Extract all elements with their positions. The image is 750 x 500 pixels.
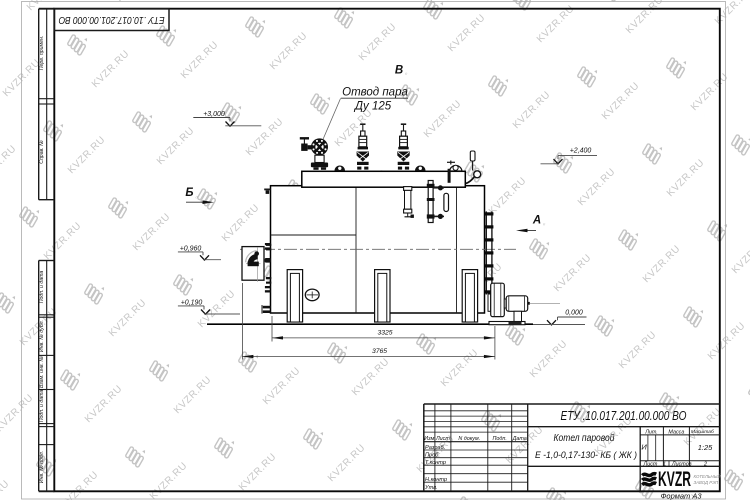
svg-text:Перв. примен.: Перв. примен. xyxy=(39,36,45,70)
svg-text:Утв.: Утв. xyxy=(424,485,438,491)
svg-text:Взам. инв. №: Взам. инв. № xyxy=(39,356,45,388)
svg-text:Инв. № подл.: Инв. № подл. xyxy=(39,451,45,483)
svg-text:ЕТУ .10.017.201.00.000 ВО: ЕТУ .10.017.201.00.000 ВО xyxy=(58,14,164,25)
svg-text:Т.контр: Т.контр xyxy=(425,460,446,466)
svg-text:Котел паровой: Котел паровой xyxy=(554,433,615,444)
svg-text:Лист: Лист xyxy=(643,461,658,467)
svg-text:1:25: 1:25 xyxy=(698,443,713,452)
svg-text:А: А xyxy=(532,215,541,227)
svg-text:+3,000: +3,000 xyxy=(203,111,225,118)
svg-text:Подп. и дата: Подп. и дата xyxy=(39,271,45,304)
svg-text:Разраб.: Разраб. xyxy=(425,445,445,451)
svg-text:ЕТУ .10.017.201.00.000 ВО: ЕТУ .10.017.201.00.000 ВО xyxy=(561,408,687,423)
svg-text:Б: Б xyxy=(185,187,193,199)
svg-text:Подп.: Подп. xyxy=(493,436,507,442)
svg-text:+0,960: +0,960 xyxy=(180,245,202,252)
svg-text:N докум.: N докум. xyxy=(458,436,480,442)
svg-text:3765: 3765 xyxy=(372,348,387,355)
svg-text:В: В xyxy=(395,65,403,77)
svg-text:Н.контр: Н.контр xyxy=(425,477,447,483)
svg-text:Изм: Изм xyxy=(424,436,434,442)
svg-text:KVZR: KVZR xyxy=(658,468,691,491)
svg-text:Подп. и дата: Подп. и дата xyxy=(39,390,45,423)
svg-text:КОТЕЛЬНЫЙ: КОТЕЛЬНЫЙ xyxy=(694,474,722,479)
svg-text:ЗАВОД РЭП: ЗАВОД РЭП xyxy=(694,480,720,485)
svg-text:Е -1,0-0,17-130- КБ ( ЖК ): Е -1,0-0,17-130- КБ ( ЖК ) xyxy=(535,450,637,461)
svg-text:Проб.: Проб. xyxy=(425,452,440,458)
svg-text:+0,190: +0,190 xyxy=(181,299,203,306)
svg-text:Отвод пара: Отвод пара xyxy=(342,87,408,99)
svg-text:2: 2 xyxy=(703,461,707,467)
svg-text:+2,400: +2,400 xyxy=(570,148,592,155)
svg-text:Листов: Листов xyxy=(671,461,692,467)
svg-text:0,000: 0,000 xyxy=(565,310,583,317)
svg-text:1: 1 xyxy=(663,461,666,467)
svg-text:Справ. №: Справ. № xyxy=(39,140,45,164)
svg-text:3325: 3325 xyxy=(377,329,392,336)
svg-text:Формат А3: Формат А3 xyxy=(660,492,702,500)
svg-text:И: И xyxy=(641,443,647,452)
svg-text:Инв. № дубл.: Инв. № дубл. xyxy=(39,320,45,352)
svg-text:Лит.: Лит. xyxy=(644,429,658,435)
svg-text:Масса: Масса xyxy=(668,429,684,435)
svg-text:Дата: Дата xyxy=(512,436,527,442)
svg-text:Лист: Лист xyxy=(435,436,450,442)
svg-text:Масштаб: Масштаб xyxy=(691,429,714,435)
svg-text:Ду 125: Ду 125 xyxy=(353,101,392,113)
